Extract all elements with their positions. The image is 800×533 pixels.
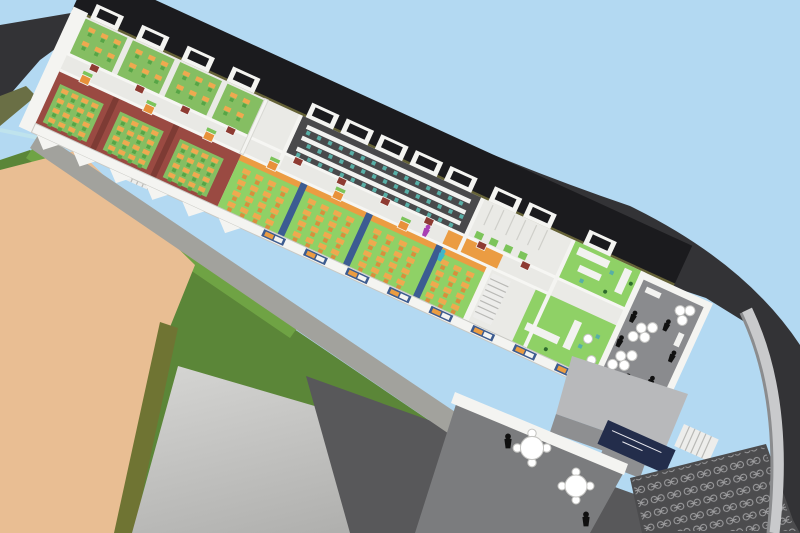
rendering-canvas: [0, 0, 800, 533]
person: [582, 512, 589, 527]
person: [504, 434, 511, 449]
